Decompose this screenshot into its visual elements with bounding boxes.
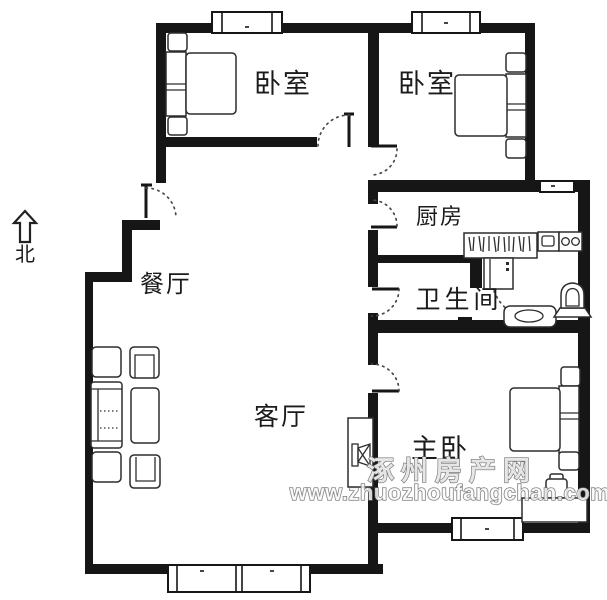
bed-bedroom1 (166, 33, 236, 135)
nightstand (506, 53, 526, 72)
door-master (372, 364, 399, 391)
doors (141, 114, 507, 391)
room-labels: 卧室 卧室 厨房 卫生间 餐厅 客厅 主卧 (140, 69, 503, 464)
wall-bedroom1-south (156, 137, 317, 147)
coffee-table (131, 388, 159, 443)
watermark-site-url: www.zhuozhoufangchan.com (289, 480, 607, 505)
wall-kitchen-bath-divider (378, 255, 470, 263)
kitchen-stove (559, 232, 582, 251)
wall-bedroom-divider (368, 23, 379, 147)
pillow (559, 452, 579, 470)
door-kitchen (371, 200, 397, 227)
end-table (92, 347, 121, 377)
pillow (561, 367, 580, 386)
label-bathroom: 卫生间 (415, 286, 502, 314)
sofa-set (91, 347, 160, 488)
mattress (510, 388, 560, 451)
kitchen-counter (464, 233, 537, 258)
label-bedroom-right: 卧室 (398, 69, 456, 99)
floor-plan-canvas: 北 卧室 卧室 厨房 卫生间 餐厅 客厅 主卧 涿州房产网 www.zhuozh… (0, 0, 607, 600)
window-master (452, 518, 523, 540)
nightstand (168, 33, 187, 51)
wall-west-bedroom1 (156, 23, 166, 183)
compass: 北 (14, 211, 36, 266)
label-kitchen: 厨房 (416, 204, 464, 229)
bathtub-vanity (504, 306, 556, 327)
north-arrow-icon (14, 211, 36, 242)
window-living (168, 565, 310, 592)
label-living: 客厅 (254, 403, 308, 431)
label-dining: 餐厅 (140, 271, 192, 298)
kitchen-sink (538, 232, 559, 251)
mattress (455, 75, 507, 136)
door-bedroom1 (318, 114, 354, 147)
wall-bath-threshold (458, 317, 472, 327)
wall-entry-step-v (122, 220, 132, 280)
mattress (186, 53, 236, 114)
armchair (130, 347, 159, 378)
wall-central-seg2 (368, 230, 378, 287)
label-bedroom-left: 卧室 (254, 69, 312, 99)
door-bedroom2 (371, 146, 397, 175)
wall-central-seg3 (368, 313, 378, 365)
sofa (91, 382, 122, 448)
floor-plan: 北 卧室 卧室 厨房 卫生间 餐厅 客厅 主卧 涿州房产网 www.zhuozh… (0, 0, 607, 600)
window-bedroom2 (412, 12, 480, 33)
nightstand (506, 139, 526, 158)
armchair (130, 455, 160, 488)
nightstand (168, 117, 187, 135)
wall-bath-stub (470, 255, 482, 288)
headboard (506, 74, 526, 137)
compass-label: 北 (15, 243, 35, 266)
wall-central-seg1 (368, 192, 378, 204)
end-table (92, 452, 121, 482)
window-kitchen (540, 181, 574, 192)
washing-machine (484, 258, 513, 289)
window-bedroom1 (212, 12, 282, 33)
bed-bedroom2 (455, 53, 526, 158)
door-entry (141, 185, 176, 218)
bed-master (510, 367, 580, 470)
